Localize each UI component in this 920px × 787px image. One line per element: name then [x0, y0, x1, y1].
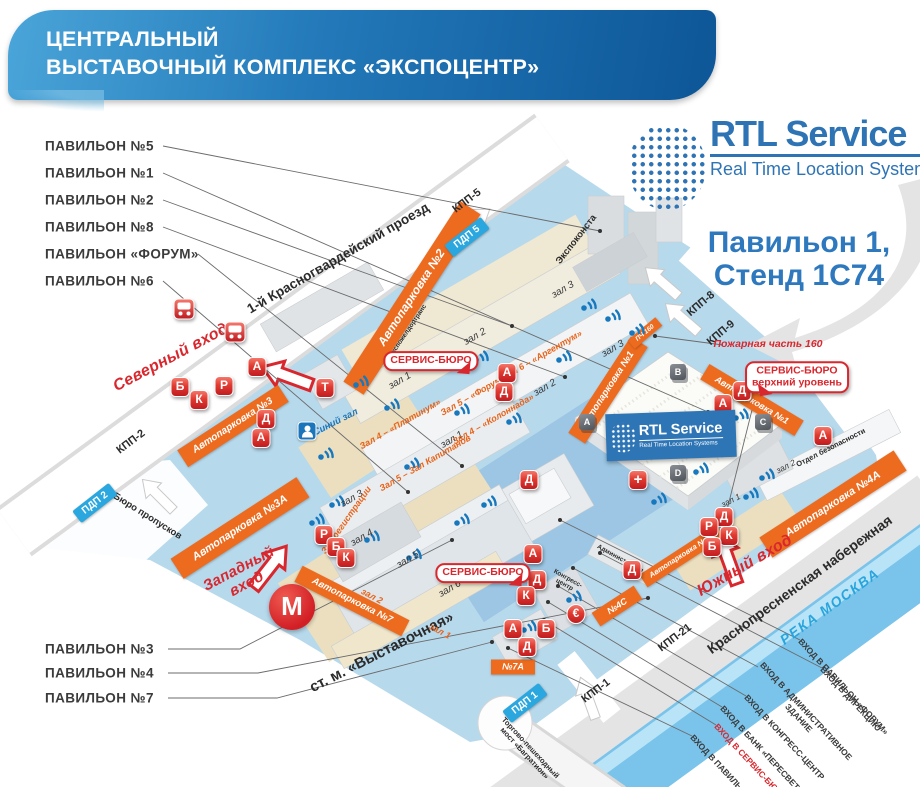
- beacon-icon: [648, 485, 672, 509]
- logo-title: RTL Service: [639, 421, 723, 442]
- hall-label: зал 5: [395, 549, 421, 571]
- header-banner: ЦЕНТРАЛЬНЫЙ ВЫСТАВОЧНЫЙ КОМПЛЕКС «ЭКСПОЦ…: [8, 10, 716, 100]
- pavilion-label: ПАВИЛЬОН «ФОРУМ»: [45, 246, 199, 261]
- beacon-waves: [690, 455, 714, 479]
- beacon-waves: [350, 368, 374, 392]
- beacon-icon: [578, 291, 602, 315]
- expocentre-map-poster: ЦЕНТРАЛЬНЫЙ ВЫСТАВОЧНЫЙ КОМПЛЕКС «ЭКСПОЦ…: [0, 0, 920, 787]
- parking-strip: №4С: [592, 586, 643, 627]
- letter-badge: А: [524, 544, 543, 564]
- corner-marker: А: [579, 414, 595, 430]
- company-label: Экспоконста: [554, 213, 599, 267]
- bus-icon: [225, 322, 246, 343]
- kpp-label: КПП-1: [579, 676, 612, 705]
- logo-subtitle: Real Time Location Systems: [639, 440, 723, 450]
- kpp-label: КПП-2: [114, 427, 147, 456]
- letter-badge: Д: [495, 382, 514, 402]
- beacon-waves: [626, 316, 650, 340]
- logo-text: RTL Service Real Time Location Systems: [710, 116, 920, 180]
- map-banner-text: RTL Service Real Time Location Systems: [639, 421, 723, 450]
- pavilion-label: ПАВИЛЬОН №1: [45, 165, 154, 180]
- letter-badge: А: [504, 619, 523, 639]
- logo-subtitle: Real Time Location Systems: [710, 159, 920, 180]
- bus-icon: [174, 299, 195, 320]
- beacon-icon: [478, 488, 502, 512]
- beacon-icon: [690, 455, 714, 479]
- letter-badge: Р: [700, 517, 719, 537]
- pavilion-label: ПАВИЛЬОН №4: [45, 665, 154, 680]
- hall-label: зал 1: [387, 370, 413, 392]
- pavilion-label: ПАВИЛЬОН №5: [45, 138, 154, 153]
- kpp-label: КПП-21: [656, 622, 694, 655]
- header-title-line1: ЦЕНТРАЛЬНЫЙ: [46, 26, 716, 54]
- beacon-waves: [315, 440, 339, 464]
- bridge-label: Торгово-пешеходный мост «Багратион»: [493, 716, 560, 786]
- beacon-waves: [648, 485, 672, 509]
- letter-badge: К: [720, 526, 739, 546]
- euro-badge: €: [567, 604, 586, 624]
- beacon-icon: [451, 506, 475, 530]
- pavilion-label: ПАВИЛЬОН №3: [45, 641, 154, 656]
- beacon-icon: [350, 368, 374, 392]
- pavilion-label: ПАВИЛЬОН №7: [45, 690, 154, 705]
- letter-badge: К: [337, 548, 356, 568]
- service-bureau-callout: СЕРВИС-БЮРО: [383, 351, 478, 371]
- letter-badge: А: [252, 428, 271, 448]
- pavilion-label: ПАВИЛЬОН №8: [45, 219, 154, 234]
- letter-badge: Б: [703, 537, 722, 557]
- pavilion1-rtl-banner: RTL Service Real Time Location Systems: [605, 410, 737, 462]
- person-icon: [298, 422, 317, 441]
- hall-label: зал 2: [532, 377, 558, 399]
- letter-badge: Д: [623, 560, 642, 580]
- letter-badge: К: [190, 390, 209, 410]
- letter-badge: Б: [537, 619, 556, 639]
- globe-icon: [628, 124, 706, 210]
- beacon-icon: [602, 302, 626, 326]
- beacon-waves: [578, 291, 602, 315]
- header-title-line2: ВЫСТАВОЧНЫЙ КОМПЛЕКС «ЭКСПОЦЕНТР»: [46, 54, 716, 82]
- letter-badge: А: [814, 426, 833, 446]
- blue-hall-label: Синий зал: [312, 407, 360, 439]
- letter-badge: Т: [316, 378, 335, 398]
- beacon-waves: [451, 506, 475, 530]
- beacon-waves: [740, 480, 764, 504]
- rtl-service-logo: RTL Service Real Time Location Systems: [628, 116, 920, 210]
- beacon-waves: [381, 391, 405, 415]
- beacon-icon: [626, 316, 650, 340]
- entrance-list-item: ВХОД В ДИРЕКЦИЮ: [818, 665, 883, 734]
- stand-callout: Павильон 1, Стенд 1С74: [690, 226, 908, 292]
- pavilion-label: ПАВИЛЬОН №2: [45, 192, 154, 207]
- corner-marker: В: [670, 364, 686, 380]
- beacon-waves: [602, 302, 626, 326]
- letter-badge: Р: [215, 376, 234, 396]
- metro-icon: М: [269, 584, 315, 630]
- letter-badge: Д: [518, 637, 537, 657]
- letter-badge: А: [248, 357, 267, 377]
- letter-badge: Д: [257, 409, 276, 429]
- beacon-icon: [381, 391, 405, 415]
- pass-office-label: Бюро пропусков: [111, 492, 184, 543]
- beacon-waves: [478, 488, 502, 512]
- globe-icon: [610, 422, 637, 453]
- service-bureau-callout: СЕРВИС-БЮРО: [435, 563, 530, 583]
- pdp-badge: ПДП 2: [72, 483, 117, 523]
- service-bureau-callout: СЕРВИС-БЮРО верхний уровень: [745, 361, 849, 393]
- kpp-label: КПП-8: [685, 289, 718, 319]
- beacon-icon: [740, 480, 764, 504]
- letter-badge: Б: [171, 377, 190, 397]
- logo-title: RTL Service: [710, 116, 920, 157]
- hall-label: зал 3: [550, 279, 576, 301]
- beacon-icon: [315, 440, 339, 464]
- fire-station-label: Пожарная часть 160: [713, 339, 822, 351]
- hall-name-label: Зал 5 – Зал Капитанов: [377, 433, 472, 494]
- pavilion-label: ПАВИЛЬОН №6: [45, 273, 154, 288]
- corner-marker: D: [670, 465, 686, 481]
- letter-badge: Д: [520, 470, 539, 490]
- letter-badge: А: [498, 363, 517, 383]
- pavilion-7a-badge: №7А: [491, 660, 535, 675]
- medical-badge: +: [629, 470, 648, 490]
- pdp-badge: ПДП 1: [502, 683, 547, 723]
- corner-marker: С: [755, 414, 771, 430]
